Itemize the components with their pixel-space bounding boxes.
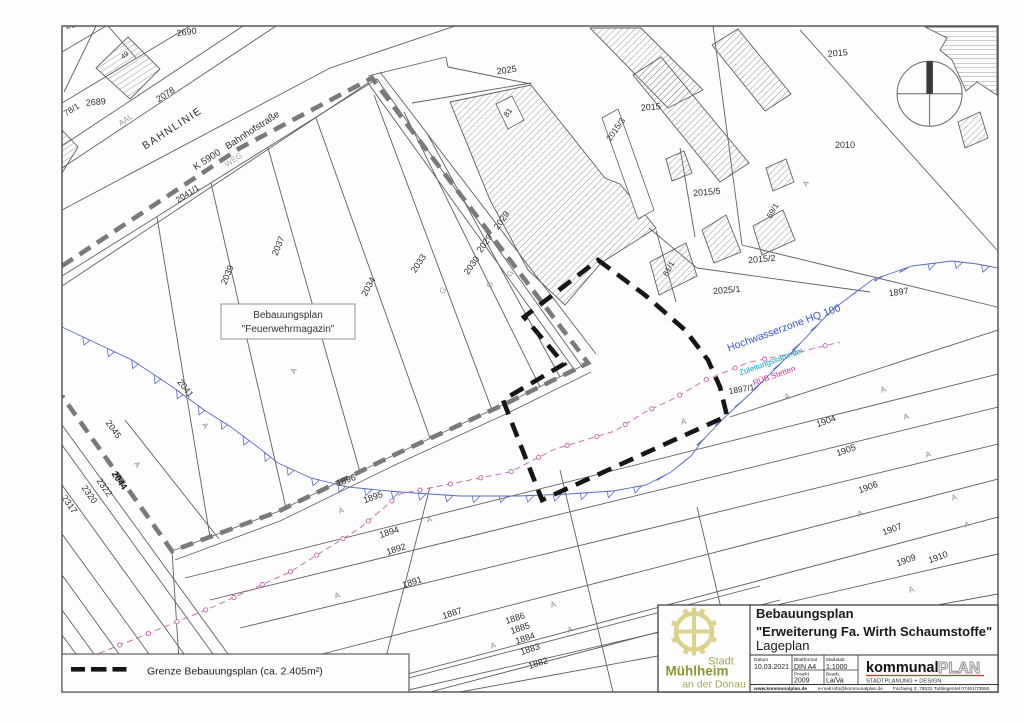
svg-text:Fachweg 3, 78532 Tuttlingen: Fachweg 3, 78532 Tuttlingen: [893, 686, 955, 692]
svg-text:kommunal: kommunal: [866, 660, 939, 676]
svg-text:Maßstab: Maßstab: [826, 657, 845, 663]
svg-text:Bebauungsplan: Bebauungsplan: [253, 310, 323, 321]
svg-text:"Erweiterung Fa. Wirth Schaums: "Erweiterung Fa. Wirth Schaumstoffe": [756, 624, 992, 639]
svg-text:STADTPLANUNG + DESIGN: STADTPLANUNG + DESIGN: [866, 679, 941, 685]
svg-text:DIN A4: DIN A4: [794, 664, 816, 671]
svg-text:www.kommunalplan.de: www.kommunalplan.de: [753, 686, 807, 692]
svg-text:Mühlheim: Mühlheim: [666, 664, 729, 679]
svg-text:Blattformat: Blattformat: [794, 657, 818, 663]
svg-text:2015: 2015: [827, 47, 848, 59]
svg-text:1:1000: 1:1000: [826, 664, 848, 671]
svg-text:2015: 2015: [640, 101, 661, 113]
svg-text:2689: 2689: [85, 96, 106, 108]
svg-text:PLAN: PLAN: [938, 660, 980, 677]
svg-text:2009: 2009: [794, 678, 810, 685]
svg-text:2010: 2010: [835, 140, 855, 150]
svg-text:e-mail info@kommunalplan.de: e-mail info@kommunalplan.de: [818, 686, 883, 692]
svg-text:an der Donau: an der Donau: [682, 679, 746, 691]
svg-text:Bebauungsplan: Bebauungsplan: [756, 606, 854, 621]
svg-text:Lageplan: Lageplan: [756, 638, 810, 653]
svg-text:tel 07461/73550: tel 07461/73550: [955, 686, 990, 692]
svg-text:Datum: Datum: [754, 657, 768, 663]
svg-text:Grenze Bebauungsplan (ca. 2.40: Grenze Bebauungsplan (ca. 2.405m²): [147, 666, 323, 678]
svg-text:La/Va: La/Va: [826, 678, 844, 685]
svg-text:"Feuerwehrmagazin": "Feuerwehrmagazin": [242, 324, 335, 335]
svg-text:10.03.2021: 10.03.2021: [754, 664, 789, 671]
